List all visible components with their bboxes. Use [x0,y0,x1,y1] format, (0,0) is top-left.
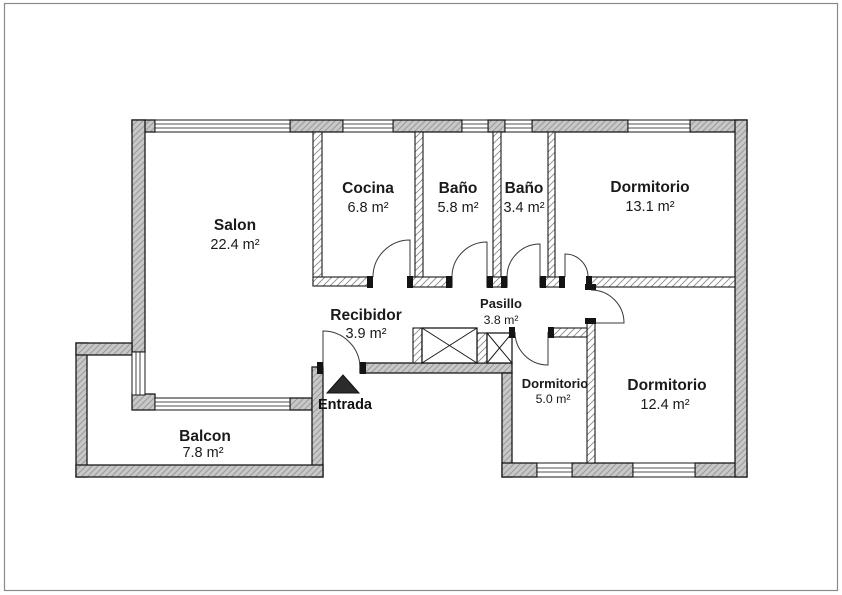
room-label-recibidor: Recibidor [330,307,401,324]
door-arc-bano-1 [452,242,487,277]
window [462,120,488,132]
entrance-arrow-icon [327,375,359,393]
window [343,120,393,132]
wall-segment [502,463,537,477]
floor-plan-page: Salon 22.4 m² Cocina 6.8 m² Baño 5.8 m² … [0,0,842,595]
room-area-bano-2: 3.4 m² [503,200,544,216]
balcony-wall [76,343,132,355]
room-area-balcon: 7.8 m² [182,445,223,461]
wall-segment [312,367,323,477]
room-area-dormitorio-1: 13.1 m² [625,199,674,215]
wall-segment [415,132,423,282]
wall-segment [550,328,587,337]
page-frame-border [5,4,838,591]
window [633,463,695,477]
room-area-bano-1: 5.8 m² [437,200,478,216]
room-area-cocina: 6.8 m² [347,200,388,216]
room-area-pasillo: 3.8 m² [484,313,519,327]
floor-plan: Salon 22.4 m² Cocina 6.8 m² Baño 5.8 m² … [0,0,842,595]
wall-segment [290,120,343,132]
door-arc-dormitorio-2 [515,332,548,365]
door-arc-bano-2 [507,244,540,277]
balcony-window [155,398,290,410]
room-labels: Salon 22.4 m² Cocina 6.8 m² Baño 5.8 m² … [179,179,706,461]
shaft-boxes [422,328,512,363]
wall-segment [413,328,422,363]
wall-segment [548,132,555,282]
room-label-pasillo: Pasillo [480,296,522,311]
window [132,352,145,395]
room-area-dormitorio-3: 12.4 m² [640,397,689,413]
room-label-salon: Salon [214,217,256,234]
entrance-label: Entrada [318,397,373,413]
wall-segment [393,120,462,132]
wall-segment [735,120,747,477]
wall-segment [313,277,370,286]
room-label-cocina: Cocina [342,180,394,197]
balcony-wall [76,343,87,477]
room-area-recibidor: 3.9 m² [345,326,386,342]
window [628,120,690,132]
wall-segment [587,323,595,463]
room-label-dormitorio-2: Dormitorio [522,376,589,391]
wall-segment [502,373,512,477]
wall-segment [532,120,628,132]
room-label-bano-1: Baño [439,180,478,197]
room-label-dormitorio-3: Dormitorio [627,377,706,394]
wall-segment [132,120,145,352]
room-area-salon: 22.4 m² [210,237,259,253]
windows [132,120,695,477]
wall-segment [360,363,512,373]
door-arc-dormitorio-1 [565,254,588,277]
room-label-balcon: Balcon [179,428,231,445]
wall-segment [572,463,633,477]
wall-segment [477,333,487,363]
room-area-dormitorio-2: 5.0 m² [536,392,571,406]
wall-segment [132,394,155,410]
wall-segment [488,120,505,132]
wall-segment [313,132,322,285]
room-label-dormitorio-1: Dormitorio [610,179,689,196]
wall-segment [493,132,501,282]
wall-segment [410,277,452,287]
window [505,120,532,132]
exterior-walls [76,120,747,477]
balcony-wall [76,465,323,477]
window [155,120,290,132]
wall-segment [290,398,312,410]
room-label-bano-2: Baño [505,180,544,197]
wall-segment [588,277,735,287]
door-arc-cocina [373,240,410,277]
window [537,463,572,477]
